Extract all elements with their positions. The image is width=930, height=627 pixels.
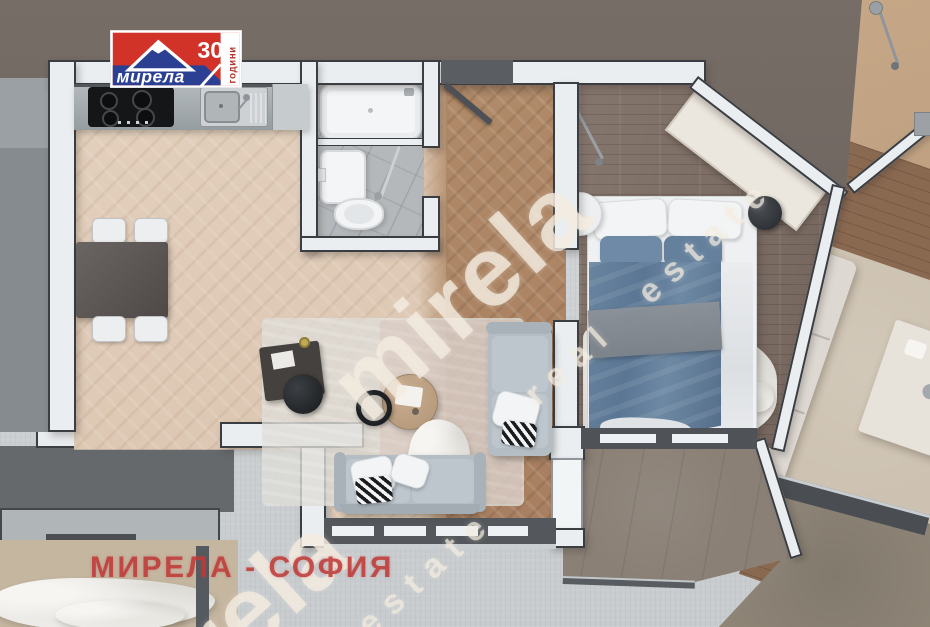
kitchen-drainboard [250, 93, 266, 123]
sofa-armrest [474, 452, 486, 512]
neighbor-cabinet [914, 112, 930, 136]
decor-yellow [299, 337, 310, 348]
bathtub-faucet [404, 88, 414, 96]
agency-logo: мирела 30 години [110, 30, 242, 88]
ball-chair [283, 374, 323, 414]
bed-pillow [592, 197, 668, 240]
floorplan-render: mirela real estate mirela real estate ми… [0, 0, 930, 627]
dining-chair [92, 218, 126, 244]
lounge-sofa-armrest [486, 322, 552, 334]
cooktop-burner [100, 92, 118, 110]
bathtub-drain [368, 108, 373, 113]
coffee-table-tray [395, 384, 424, 407]
living-room-window-pane [332, 526, 374, 536]
logo-years-number: 30 [197, 37, 223, 63]
wall-bedroom-west-lower [553, 320, 579, 432]
lounge-sofa-pillow-zigzag [500, 420, 537, 448]
wall-west [48, 60, 76, 432]
lounge-sofa-cushion [492, 336, 548, 392]
bed-pillow [667, 198, 743, 240]
ring-stool [356, 390, 392, 426]
bedside-table [748, 196, 782, 230]
logo-brand-text: мирела [117, 67, 185, 87]
wall-bathroom-east-upper [422, 60, 440, 148]
bed-sheet [721, 262, 753, 438]
bed-throw [587, 301, 722, 358]
wall-bedroom-west-upper [553, 82, 579, 250]
dining-chair [134, 316, 168, 342]
sofa-armrest [334, 452, 346, 512]
living-room-window-pane [488, 526, 528, 536]
living-room-window-pane [436, 526, 478, 536]
wall-bathroom-south [300, 236, 440, 252]
living-room-window-sill [324, 544, 556, 549]
wall-balcony-door-jamb [549, 426, 585, 460]
shower-handle [374, 192, 382, 200]
bed-pillow-blue [600, 236, 662, 266]
cooktop-burner [136, 108, 155, 127]
sofa-pillow-zigzag [355, 475, 394, 505]
bedroom-floor-lamp-base [595, 158, 603, 166]
dining-table [76, 242, 168, 318]
dining-chair [92, 316, 126, 342]
bathroom-half-wall [316, 138, 424, 146]
logo-years-label: години [227, 46, 238, 83]
sofa-back [340, 504, 480, 514]
bedroom-window-pane [672, 434, 728, 443]
neighbor-below-dark-band [0, 446, 234, 512]
neighbor-below-bed [55, 600, 185, 627]
floor-lamp-base [891, 62, 899, 70]
caption-text: МИРЕЛА - СОФИЯ [90, 551, 394, 585]
cooktop-knobs [118, 121, 152, 124]
coffee-table-decor [412, 408, 419, 415]
toilet-seat [344, 204, 374, 224]
entry-door-recess [441, 60, 513, 84]
washbasin [320, 150, 366, 204]
living-room-window-pane [384, 526, 426, 536]
kitchen-cabinet-end [272, 84, 308, 130]
dining-chair [134, 218, 168, 244]
floor-lamp-head [869, 1, 883, 15]
cooktop-burner [132, 90, 152, 110]
cooktop-burner [102, 110, 119, 127]
kitchen-sink-drain [219, 104, 223, 108]
bedroom-window-pane [600, 434, 656, 443]
bed-pillow-blue [664, 236, 722, 266]
